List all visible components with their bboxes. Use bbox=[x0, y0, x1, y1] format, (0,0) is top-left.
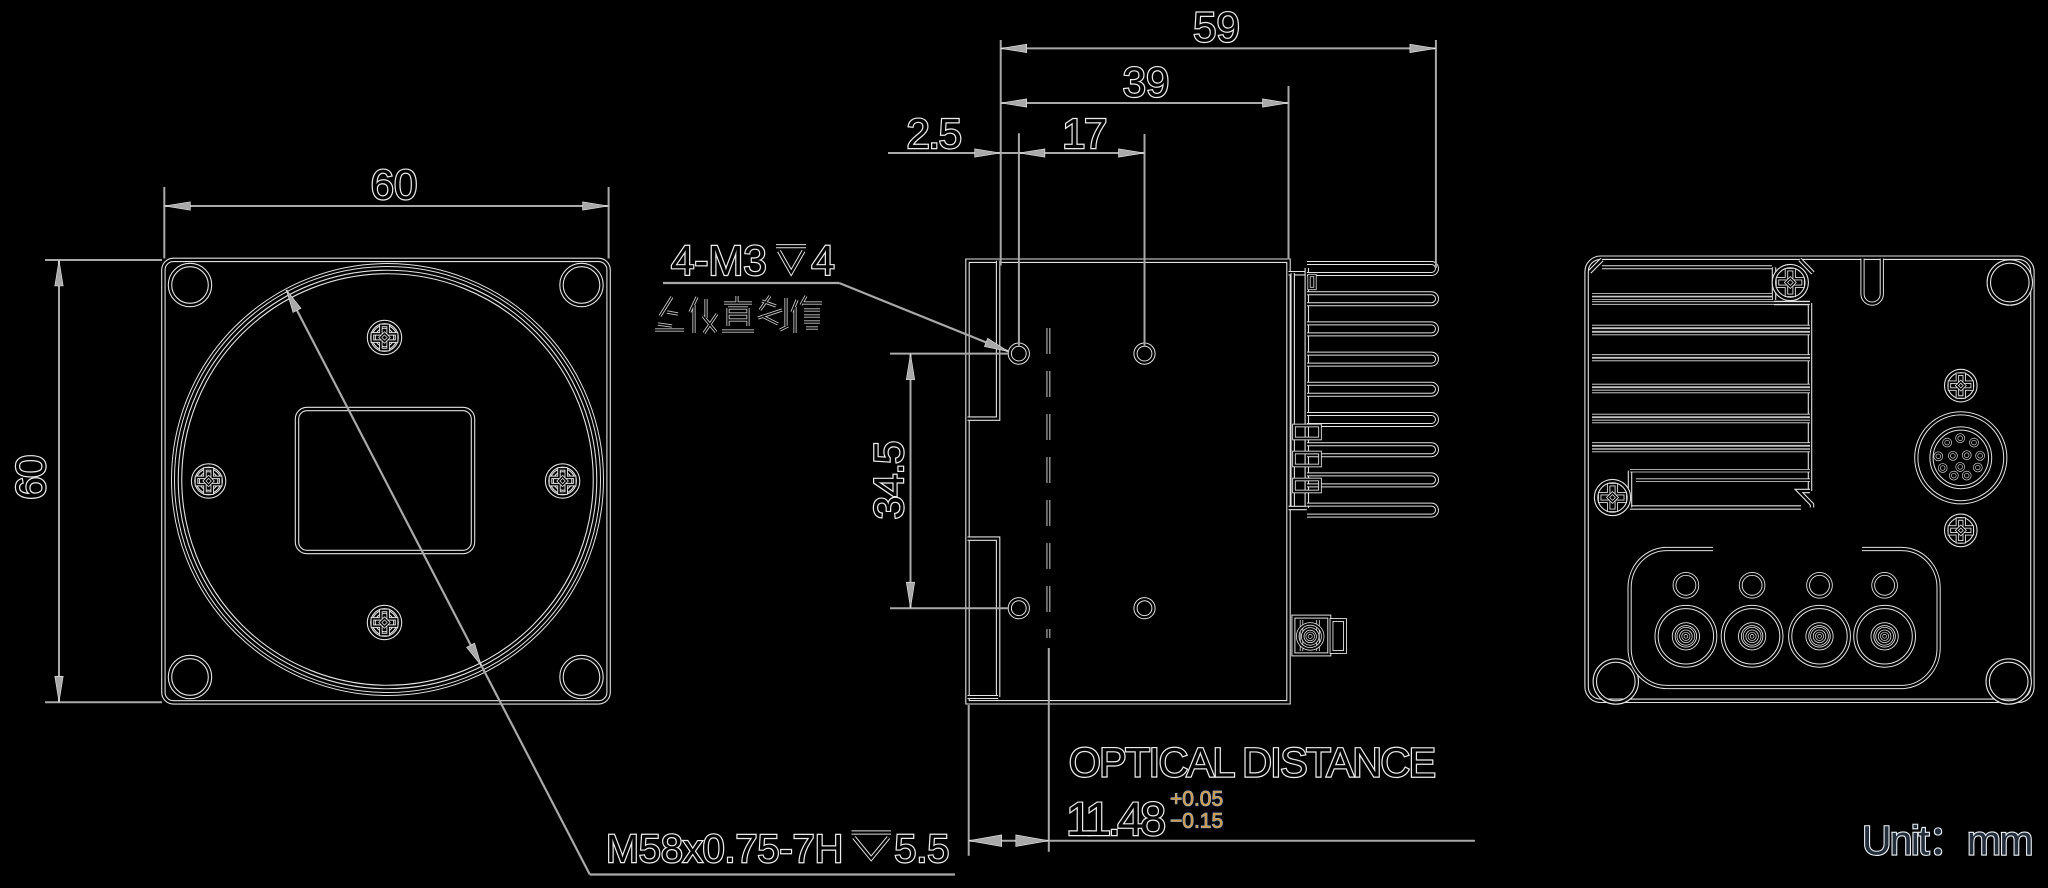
svg-text:5.5: 5.5 bbox=[894, 827, 949, 871]
svg-text:17: 17 bbox=[1062, 110, 1106, 157]
svg-text:34.5: 34.5 bbox=[865, 442, 912, 520]
svg-text:2.5: 2.5 bbox=[907, 110, 961, 157]
svg-text:60: 60 bbox=[371, 161, 418, 208]
svg-text:39: 39 bbox=[1123, 58, 1170, 105]
svg-text:M58x0.75-7H: M58x0.75-7H bbox=[606, 827, 843, 871]
svg-text:−0.15: −0.15 bbox=[1170, 810, 1223, 833]
svg-text:4: 4 bbox=[811, 237, 834, 284]
svg-text:OPTICAL DISTANCE: OPTICAL DISTANCE bbox=[1069, 739, 1435, 785]
svg-text:+0.05: +0.05 bbox=[1170, 788, 1223, 811]
svg-text:4-M3: 4-M3 bbox=[671, 237, 767, 284]
svg-text:11.48: 11.48 bbox=[1066, 792, 1165, 845]
svg-text:Unit：mm: Unit：mm bbox=[1862, 818, 2032, 864]
svg-text:60: 60 bbox=[7, 456, 54, 500]
svg-text:59: 59 bbox=[1193, 3, 1240, 50]
